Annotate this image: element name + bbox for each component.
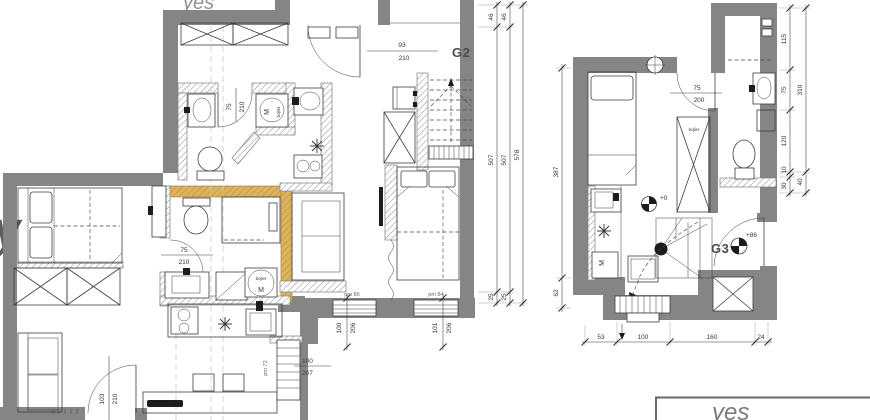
washing-machine: M [592,252,618,278]
washer1-note: bojler [276,106,281,117]
svg-text:40: 40 [797,178,804,186]
lower-stairs [277,340,300,400]
svg-text:M: M [258,287,264,294]
svg-text:115: 115 [781,33,788,44]
g2-window-1 [333,300,376,316]
toilet [183,198,210,234]
stair-treads [615,296,670,313]
svg-text:100: 100 [302,358,313,365]
svg-text:24: 24 [757,334,765,341]
title-block: yes [655,397,870,420]
svg-text:bojler: bojler [256,276,267,281]
tv [379,187,383,226]
svg-text:101: 101 [432,322,439,333]
svg-text:pm 84: pm 84 [428,292,444,298]
stair-landing [627,313,659,322]
floor-plan-drawing: y yes [0,0,870,420]
hob-symbol [218,317,232,331]
vanity-sink [165,268,209,298]
sink [184,94,215,127]
svg-text:10: 10 [781,166,788,174]
svg-text:53: 53 [597,334,605,341]
svg-text:207: 207 [302,370,313,377]
svg-text:103: 103 [99,393,106,404]
svg-text:93: 93 [398,42,406,49]
svg-text:578: 578 [514,149,521,160]
stove [294,155,322,178]
svg-text:25: 25 [501,293,508,301]
svg-text:507: 507 [501,154,508,165]
towel-rail [762,29,772,36]
radiator-panel [152,186,166,237]
svg-text:75: 75 [781,86,788,94]
svg-text:30: 30 [781,182,788,190]
svg-text:25: 25 [488,293,495,301]
stair-opening-code: pm 72 [263,360,269,376]
svg-text:46: 46 [501,13,508,21]
svg-text:46: 46 [488,13,495,21]
hob-symbol [597,224,611,238]
boiler-note: bojler [689,127,700,132]
hob-symbol [310,139,324,153]
svg-text:75: 75 [693,85,701,92]
watermark-corner: yes [710,399,749,420]
floor-plan-canvas: y yes [0,0,870,420]
svg-text:+86: +86 [746,232,757,239]
svg-text:75: 75 [226,103,233,111]
sink [749,73,775,104]
svg-text:310: 310 [797,84,804,95]
svg-text:200: 200 [694,97,705,104]
tray [147,400,183,407]
svg-text:M: M [599,260,606,266]
svg-text:100: 100 [336,322,343,333]
svg-text:210: 210 [179,259,190,266]
g2-window-2 [414,300,458,316]
svg-text:+0: +0 [660,195,668,202]
background [0,0,870,420]
washer1-label: M [264,109,271,115]
svg-text:206: 206 [350,322,357,333]
toilet [197,147,224,180]
g2-label: G2 [452,45,470,60]
wardrobe [713,277,753,311]
washing-machine-2: bojler M [245,268,277,297]
stove [171,307,198,334]
svg-text:100: 100 [638,334,649,341]
g3-label: G3 [711,241,729,256]
svg-text:75: 75 [180,247,188,254]
svg-text:210: 210 [112,393,119,404]
svg-text:210: 210 [399,55,410,62]
towel-rail [762,19,772,26]
svg-text:160: 160 [707,334,718,341]
svg-text:206: 206 [446,322,453,333]
svg-text:62: 62 [553,289,560,297]
svg-text:120: 120 [781,135,788,146]
svg-text:pm 86: pm 86 [344,292,360,298]
svg-text:387: 387 [553,166,560,177]
toilet [733,140,755,179]
svg-text:210: 210 [239,101,246,112]
washing-machine-1: M bojler [256,94,288,127]
shower-tray [216,272,247,300]
svg-text:507: 507 [488,154,495,165]
